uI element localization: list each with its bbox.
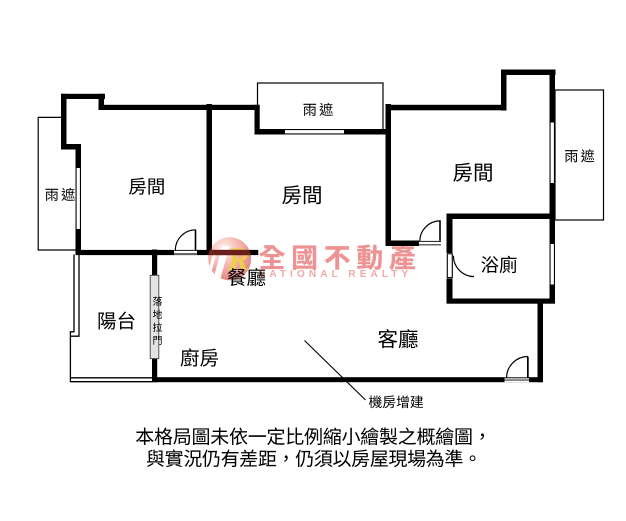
svg-text:NATIONAL REALTY: NATIONAL REALTY xyxy=(258,269,412,280)
svg-text:R: R xyxy=(227,242,250,278)
